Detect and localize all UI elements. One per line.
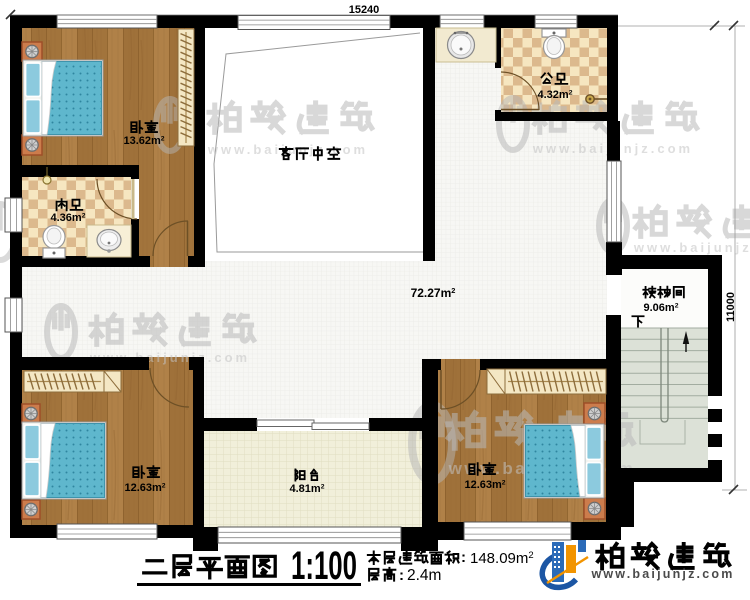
svg-text:72.27m2: 72.27m2 bbox=[411, 286, 456, 300]
svg-text:12.63m2: 12.63m2 bbox=[464, 479, 505, 491]
svg-text::: : bbox=[461, 549, 466, 566]
svg-text:12.63m2: 12.63m2 bbox=[124, 482, 165, 494]
svg-text:13.62m2: 13.62m2 bbox=[123, 135, 164, 147]
svg-text:4.81m2: 4.81m2 bbox=[290, 483, 325, 495]
svg-text:2.4m: 2.4m bbox=[407, 567, 441, 584]
svg-text:www.baijunjz.com: www.baijunjz.com bbox=[590, 567, 734, 581]
svg-text:11000: 11000 bbox=[725, 292, 737, 322]
svg-text::: : bbox=[399, 567, 404, 584]
svg-text:www.baijunjz.com: www.baijunjz.com bbox=[633, 240, 750, 255]
svg-text:15240: 15240 bbox=[349, 4, 380, 16]
svg-text:9.06m2: 9.06m2 bbox=[644, 302, 679, 314]
svg-text:1:100: 1:100 bbox=[291, 544, 357, 588]
svg-text:4.36m2: 4.36m2 bbox=[51, 212, 86, 224]
svg-text:4.32m2: 4.32m2 bbox=[538, 89, 573, 101]
svg-text:148.09m2: 148.09m2 bbox=[470, 550, 534, 567]
